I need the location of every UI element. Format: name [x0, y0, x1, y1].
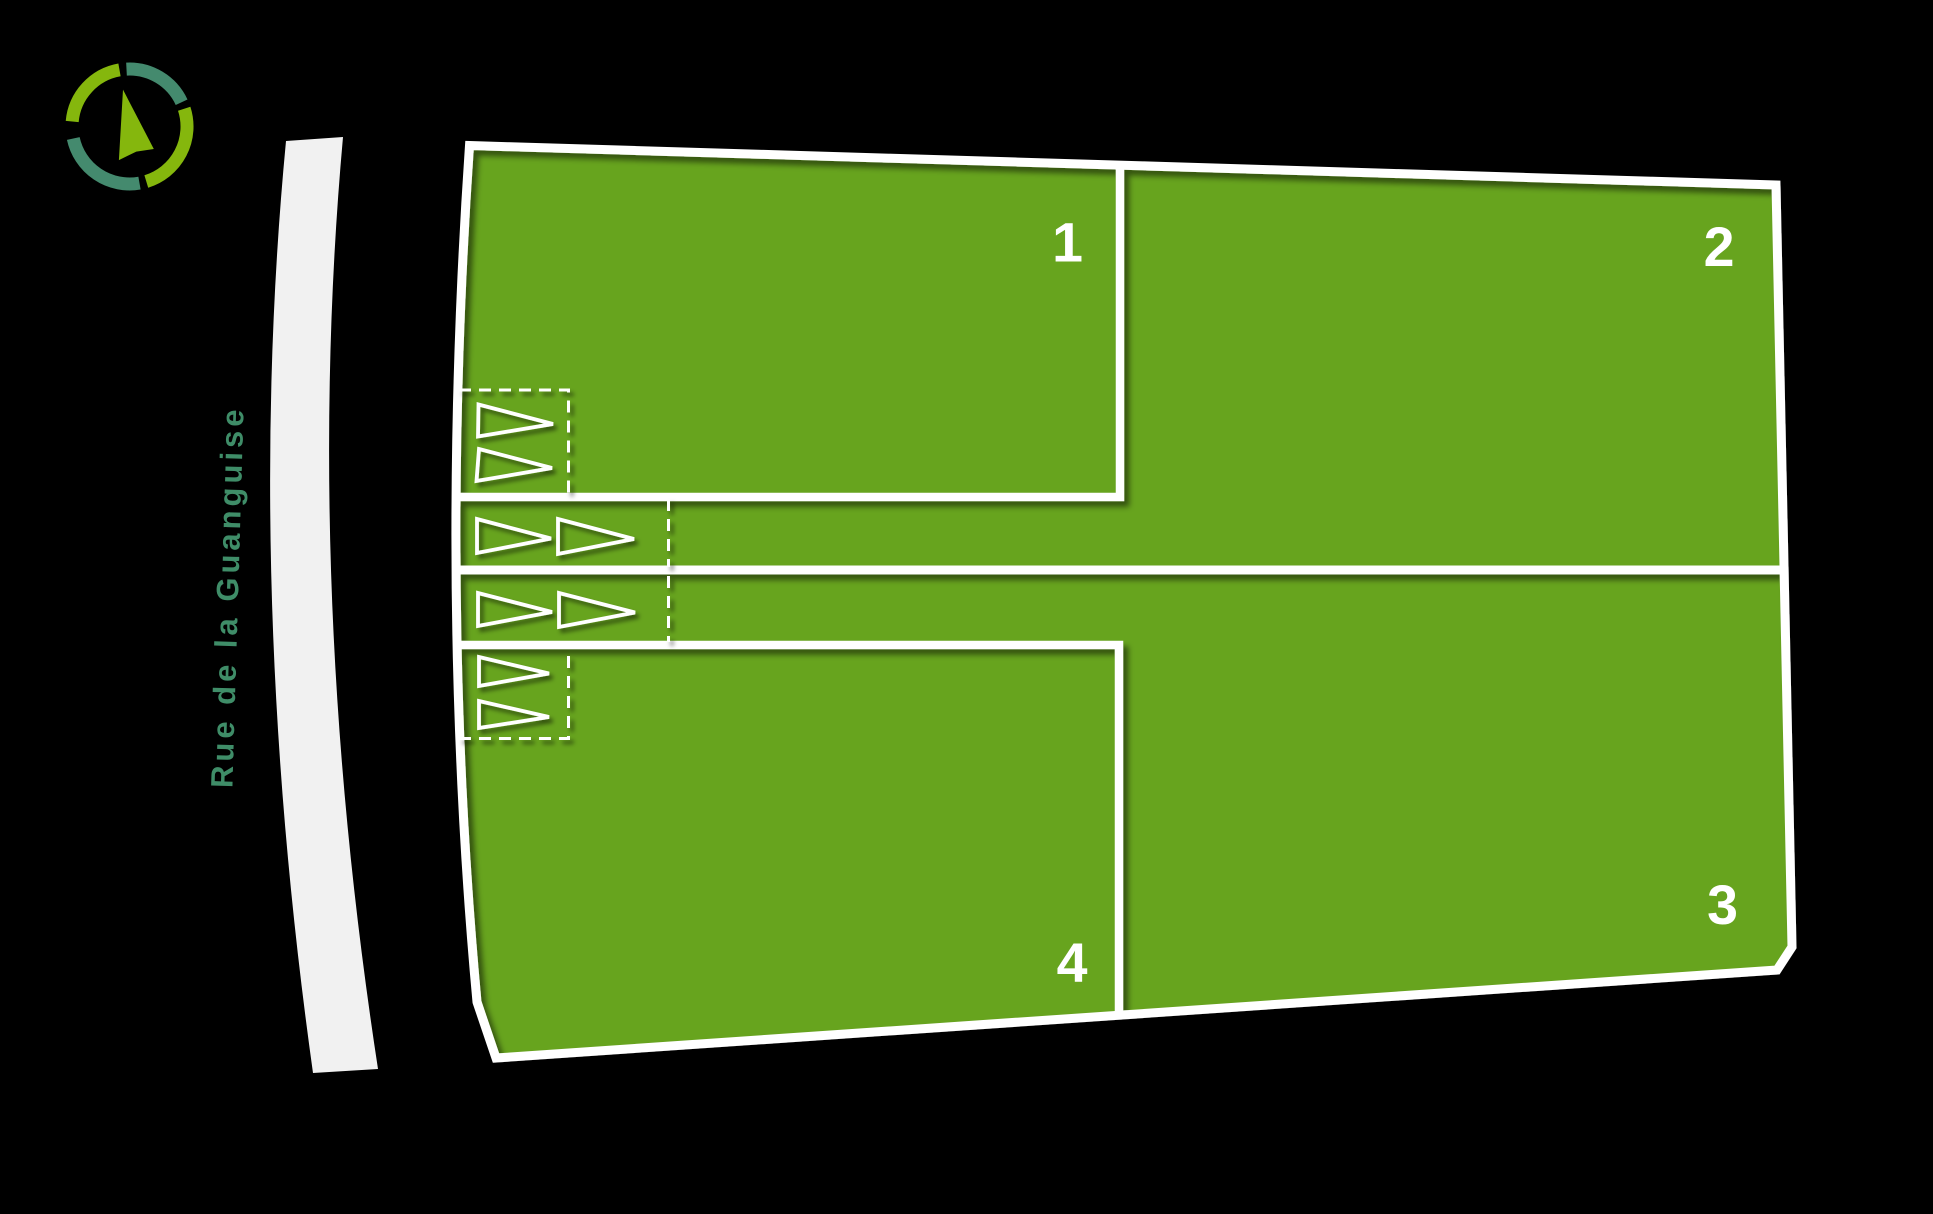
svg-text:2: 2 [1704, 216, 1735, 278]
svg-text:3: 3 [1707, 874, 1738, 936]
svg-text:1: 1 [1052, 212, 1083, 274]
svg-text:4: 4 [1057, 932, 1088, 994]
